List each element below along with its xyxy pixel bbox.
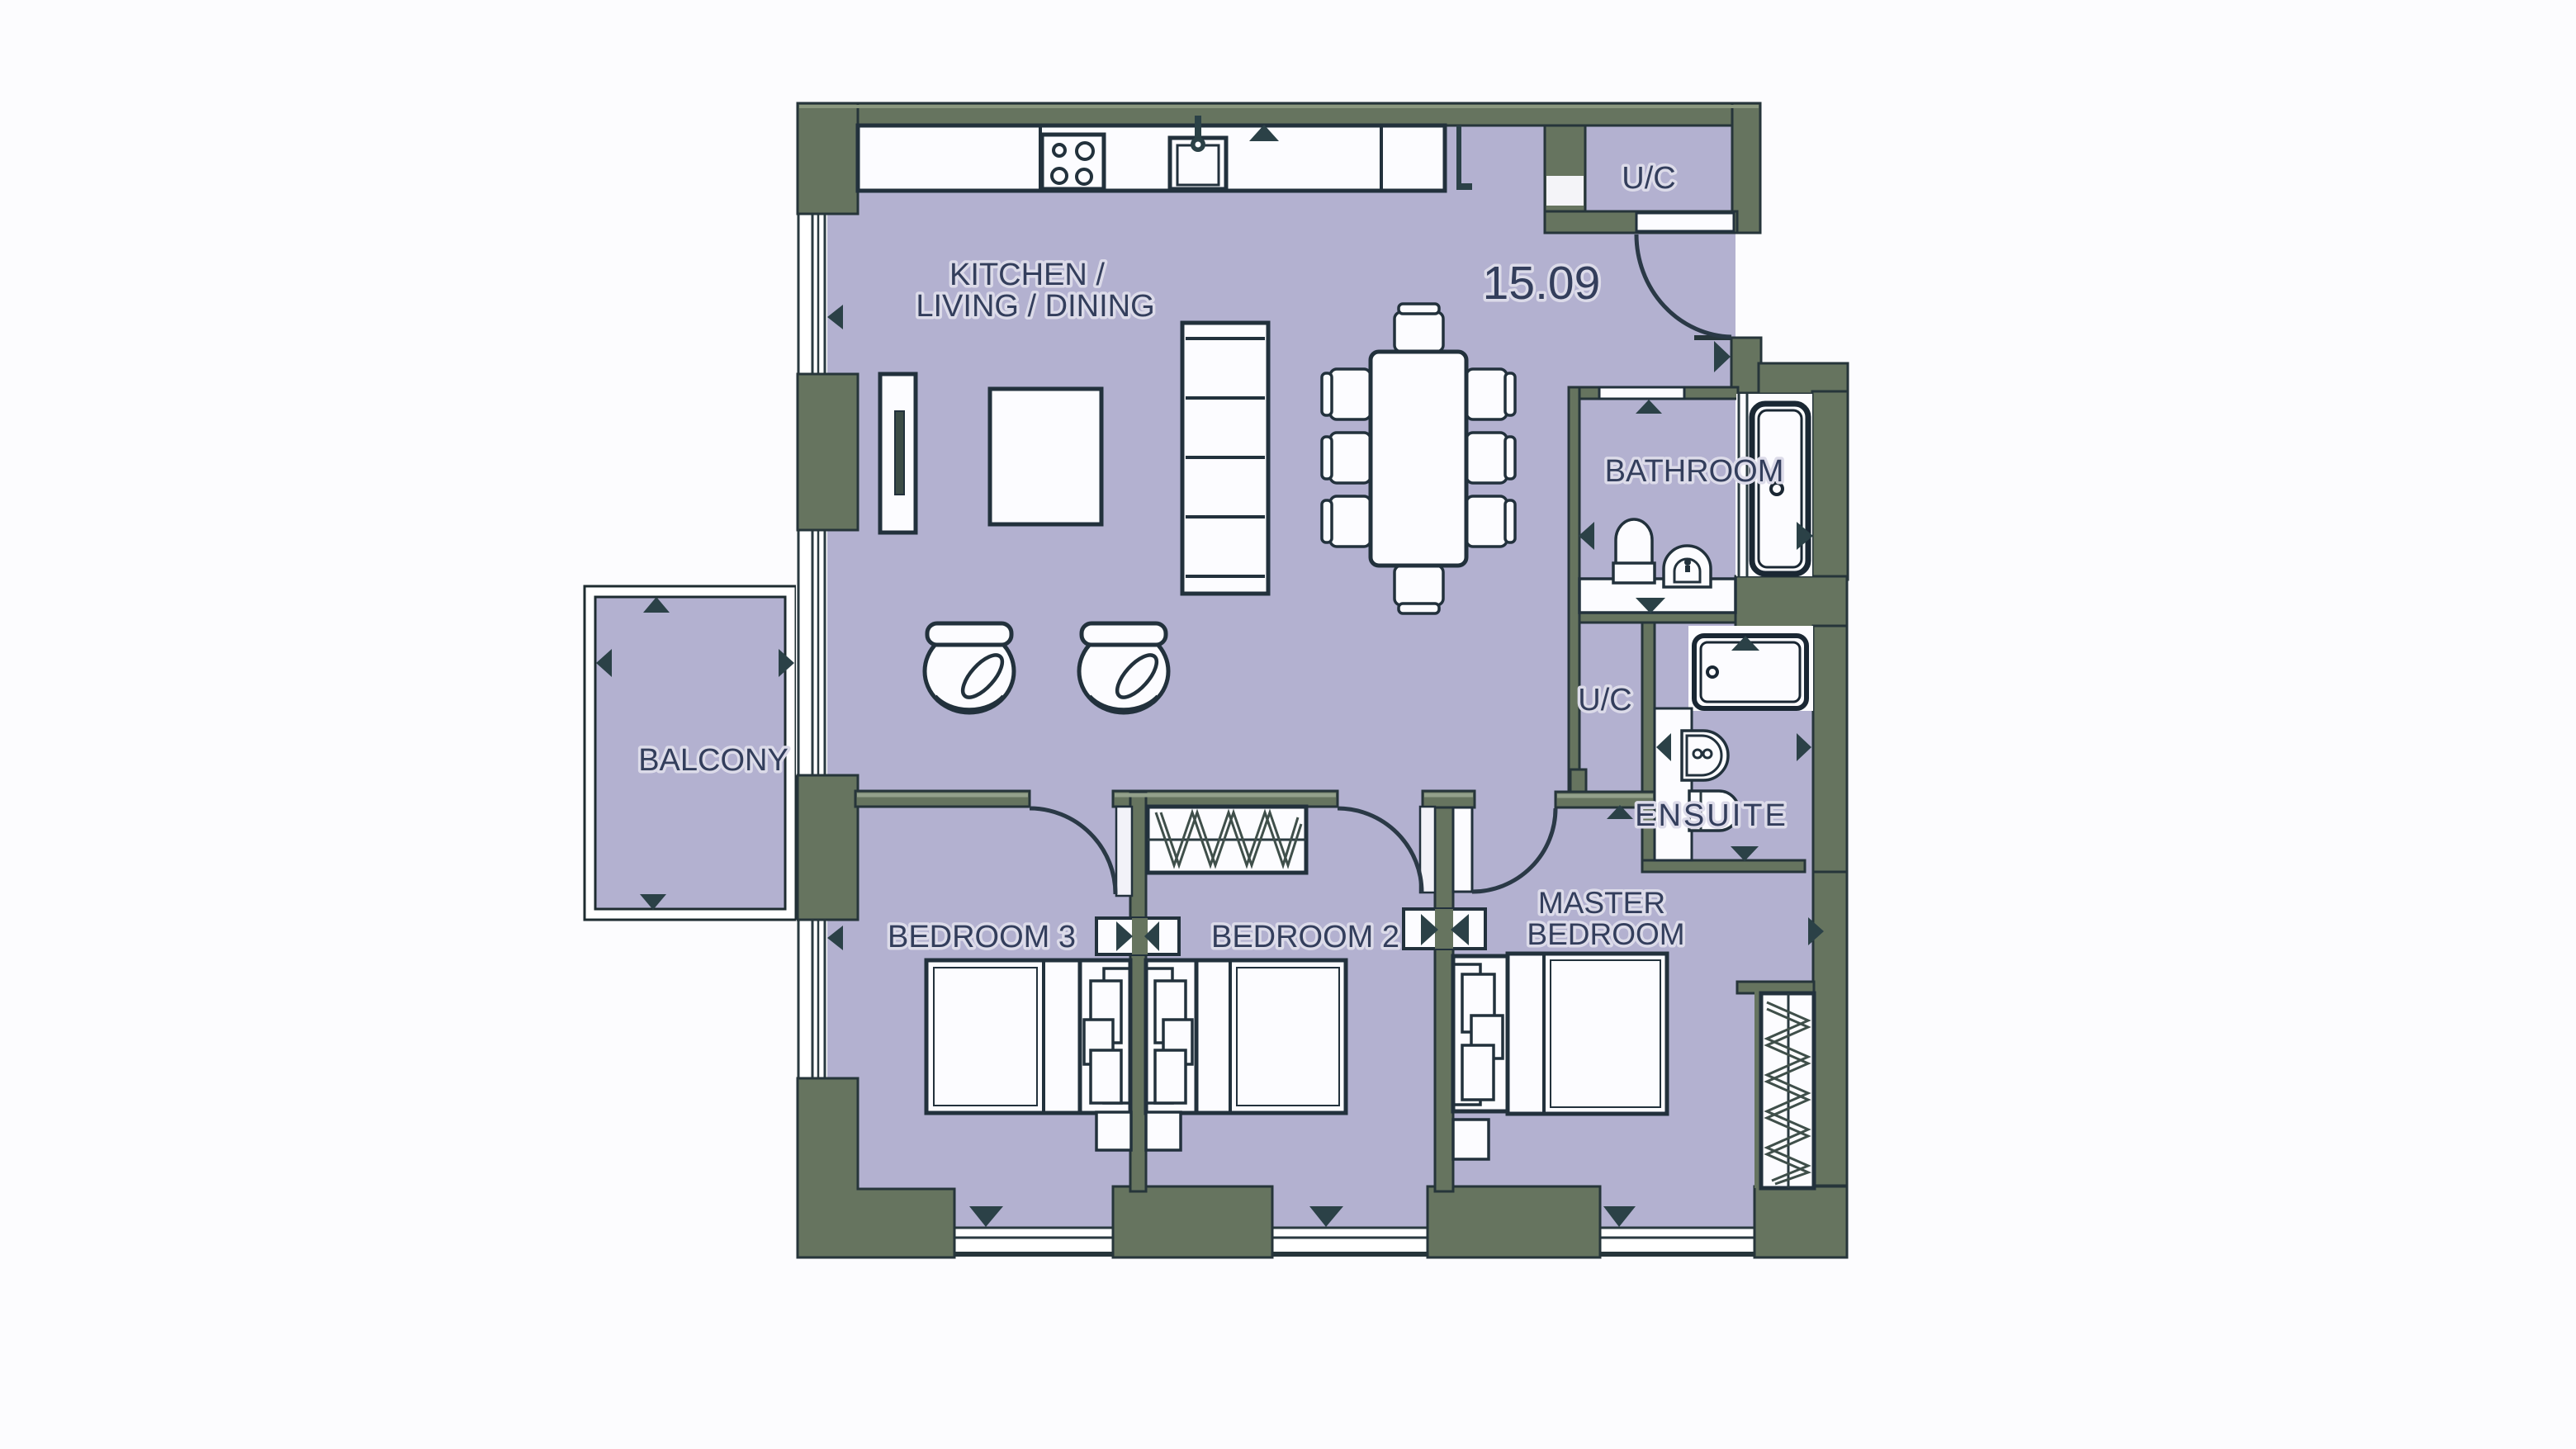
- svg-text:MASTER: MASTER: [1538, 886, 1665, 920]
- svg-text:BALCONY: BALCONY: [638, 743, 788, 778]
- svg-text:ENSUITE: ENSUITE: [1635, 798, 1788, 833]
- svg-text:BATHROOM: BATHROOM: [1605, 454, 1784, 489]
- svg-text:U/C: U/C: [1622, 161, 1675, 196]
- svg-text:BEDROOM: BEDROOM: [1527, 917, 1684, 951]
- svg-text:BEDROOM 2: BEDROOM 2: [1211, 920, 1399, 954]
- svg-text:BEDROOM 3: BEDROOM 3: [888, 920, 1076, 954]
- svg-text:KITCHEN /: KITCHEN /: [949, 258, 1105, 292]
- svg-text:U/C: U/C: [1578, 683, 1631, 717]
- svg-text:15.09: 15.09: [1483, 257, 1601, 310]
- svg-text:LIVING / DINING: LIVING / DINING: [916, 289, 1154, 324]
